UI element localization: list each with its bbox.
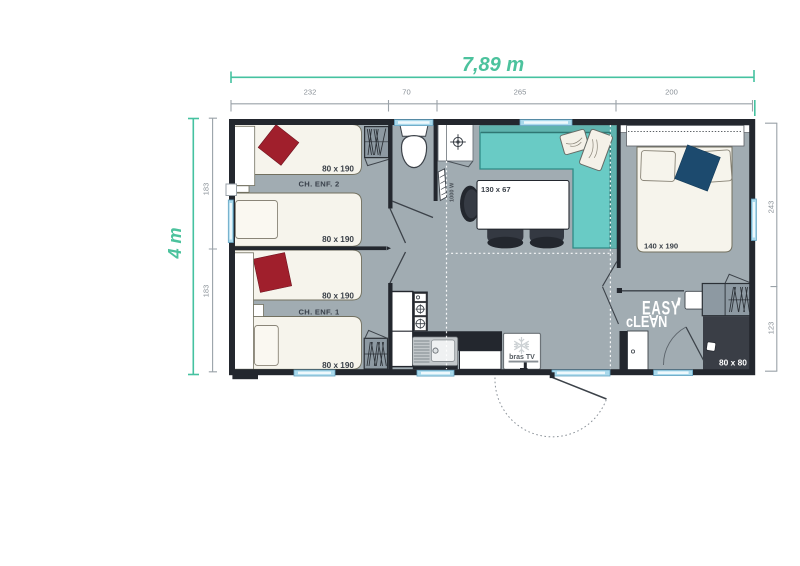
svg-text:bras TV: bras TV xyxy=(509,354,535,361)
svg-text:80 x 190: 80 x 190 xyxy=(322,235,354,244)
svg-text:265: 265 xyxy=(514,88,527,97)
svg-text:1000 W: 1000 W xyxy=(450,182,456,202)
svg-text:243: 243 xyxy=(767,201,776,214)
svg-text:CH. ENF. 1: CH. ENF. 1 xyxy=(299,308,340,317)
svg-text:80 x 80: 80 x 80 xyxy=(719,358,747,368)
svg-text:7,89 m: 7,89 m xyxy=(462,54,524,76)
svg-text:80 x 190: 80 x 190 xyxy=(322,165,354,174)
svg-text:CH. ENF. 2: CH. ENF. 2 xyxy=(299,180,340,189)
svg-text:cLE∀N: cLE∀N xyxy=(626,314,667,332)
svg-text:123: 123 xyxy=(767,322,776,335)
svg-text:80 x 190: 80 x 190 xyxy=(322,361,354,370)
svg-text:200: 200 xyxy=(665,88,678,97)
svg-text:183: 183 xyxy=(202,285,211,298)
svg-text:140 x 190: 140 x 190 xyxy=(644,242,678,251)
svg-text:232: 232 xyxy=(304,88,317,97)
svg-text:80 x 190: 80 x 190 xyxy=(322,292,354,301)
svg-text:130 x 67: 130 x 67 xyxy=(481,185,511,194)
svg-text:183: 183 xyxy=(202,183,211,196)
svg-text:4 m: 4 m xyxy=(165,227,185,259)
svg-text:70: 70 xyxy=(402,88,410,97)
